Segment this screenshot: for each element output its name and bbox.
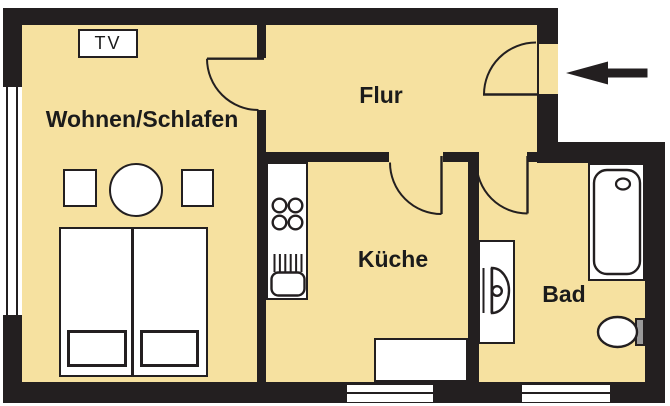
entrance-threshold-line (537, 44, 539, 94)
window-living-left-glazing-line2 (16, 87, 18, 315)
wall-top (3, 8, 558, 25)
wall-hall-kitchen (266, 152, 389, 162)
room-label-kitchen: Küche (343, 247, 443, 271)
wall-right-upper (537, 8, 558, 44)
toilet-cistern (635, 318, 645, 346)
chair-left (63, 169, 97, 207)
room-label-living: Wohnen/Schlafen (32, 107, 252, 131)
window-living-left-glazing-line (6, 87, 8, 315)
bed-divider-line (131, 229, 134, 375)
window-kitchen-glazing-line (347, 392, 433, 394)
kitchen-table (374, 338, 468, 382)
chair-right (181, 169, 214, 207)
wall-living-hall-upper (257, 25, 266, 58)
kitchen-counter (266, 162, 308, 300)
entrance-arrow-icon (566, 62, 648, 85)
room-label-bath: Bad (524, 282, 604, 306)
wall-hall-right-stub (527, 152, 537, 162)
wall-right-lower (645, 142, 665, 403)
floor-plan: TV (0, 0, 670, 406)
round-table (109, 163, 163, 217)
wall-hall-center-stub (443, 152, 479, 162)
wall-right-mid (537, 94, 558, 142)
bed-pillow-right (140, 330, 199, 367)
tv-cabinet: TV (78, 29, 138, 58)
washbasin-unit (478, 240, 515, 344)
bed-pillow-left (67, 330, 127, 367)
wall-living-kitchen (257, 110, 266, 382)
tv-label: TV (94, 33, 121, 54)
bathtub (588, 163, 645, 281)
window-bath-glazing-line (522, 392, 610, 394)
room-label-hall: Flur (341, 83, 421, 107)
